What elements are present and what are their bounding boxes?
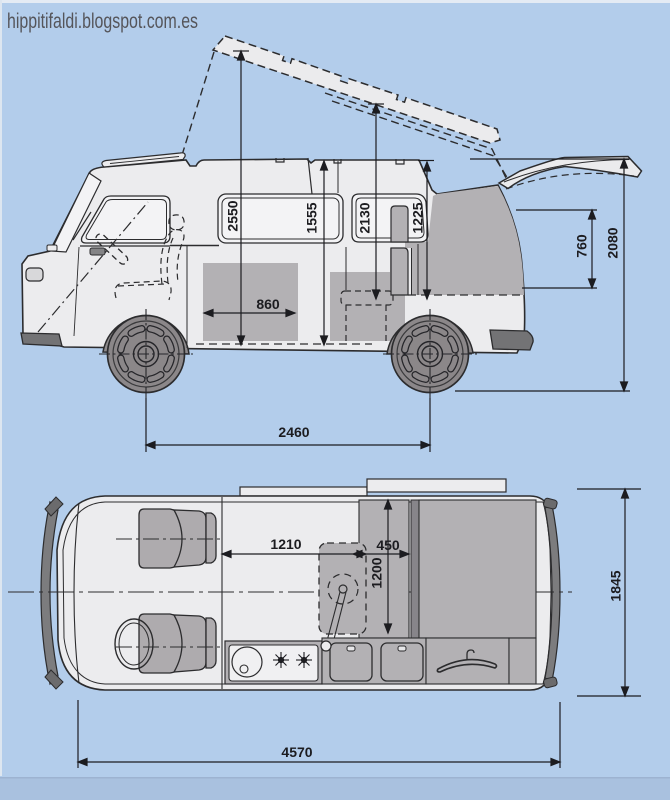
svg-text:4570: 4570	[281, 744, 312, 760]
svg-text:1210: 1210	[270, 536, 301, 552]
svg-text:1845: 1845	[608, 570, 624, 601]
svg-text:2130: 2130	[357, 202, 373, 233]
svg-text:1200: 1200	[369, 557, 385, 588]
svg-text:450: 450	[376, 537, 400, 553]
svg-text:hippitifaldi.blogspot.com.es: hippitifaldi.blogspot.com.es	[7, 10, 198, 33]
svg-text:1555: 1555	[304, 202, 320, 233]
svg-text:760: 760	[574, 234, 590, 258]
svg-text:2550: 2550	[225, 200, 241, 231]
svg-text:2460: 2460	[278, 424, 309, 440]
svg-text:2080: 2080	[605, 227, 621, 258]
svg-text:860: 860	[256, 296, 280, 312]
svg-text:1225: 1225	[410, 202, 426, 233]
